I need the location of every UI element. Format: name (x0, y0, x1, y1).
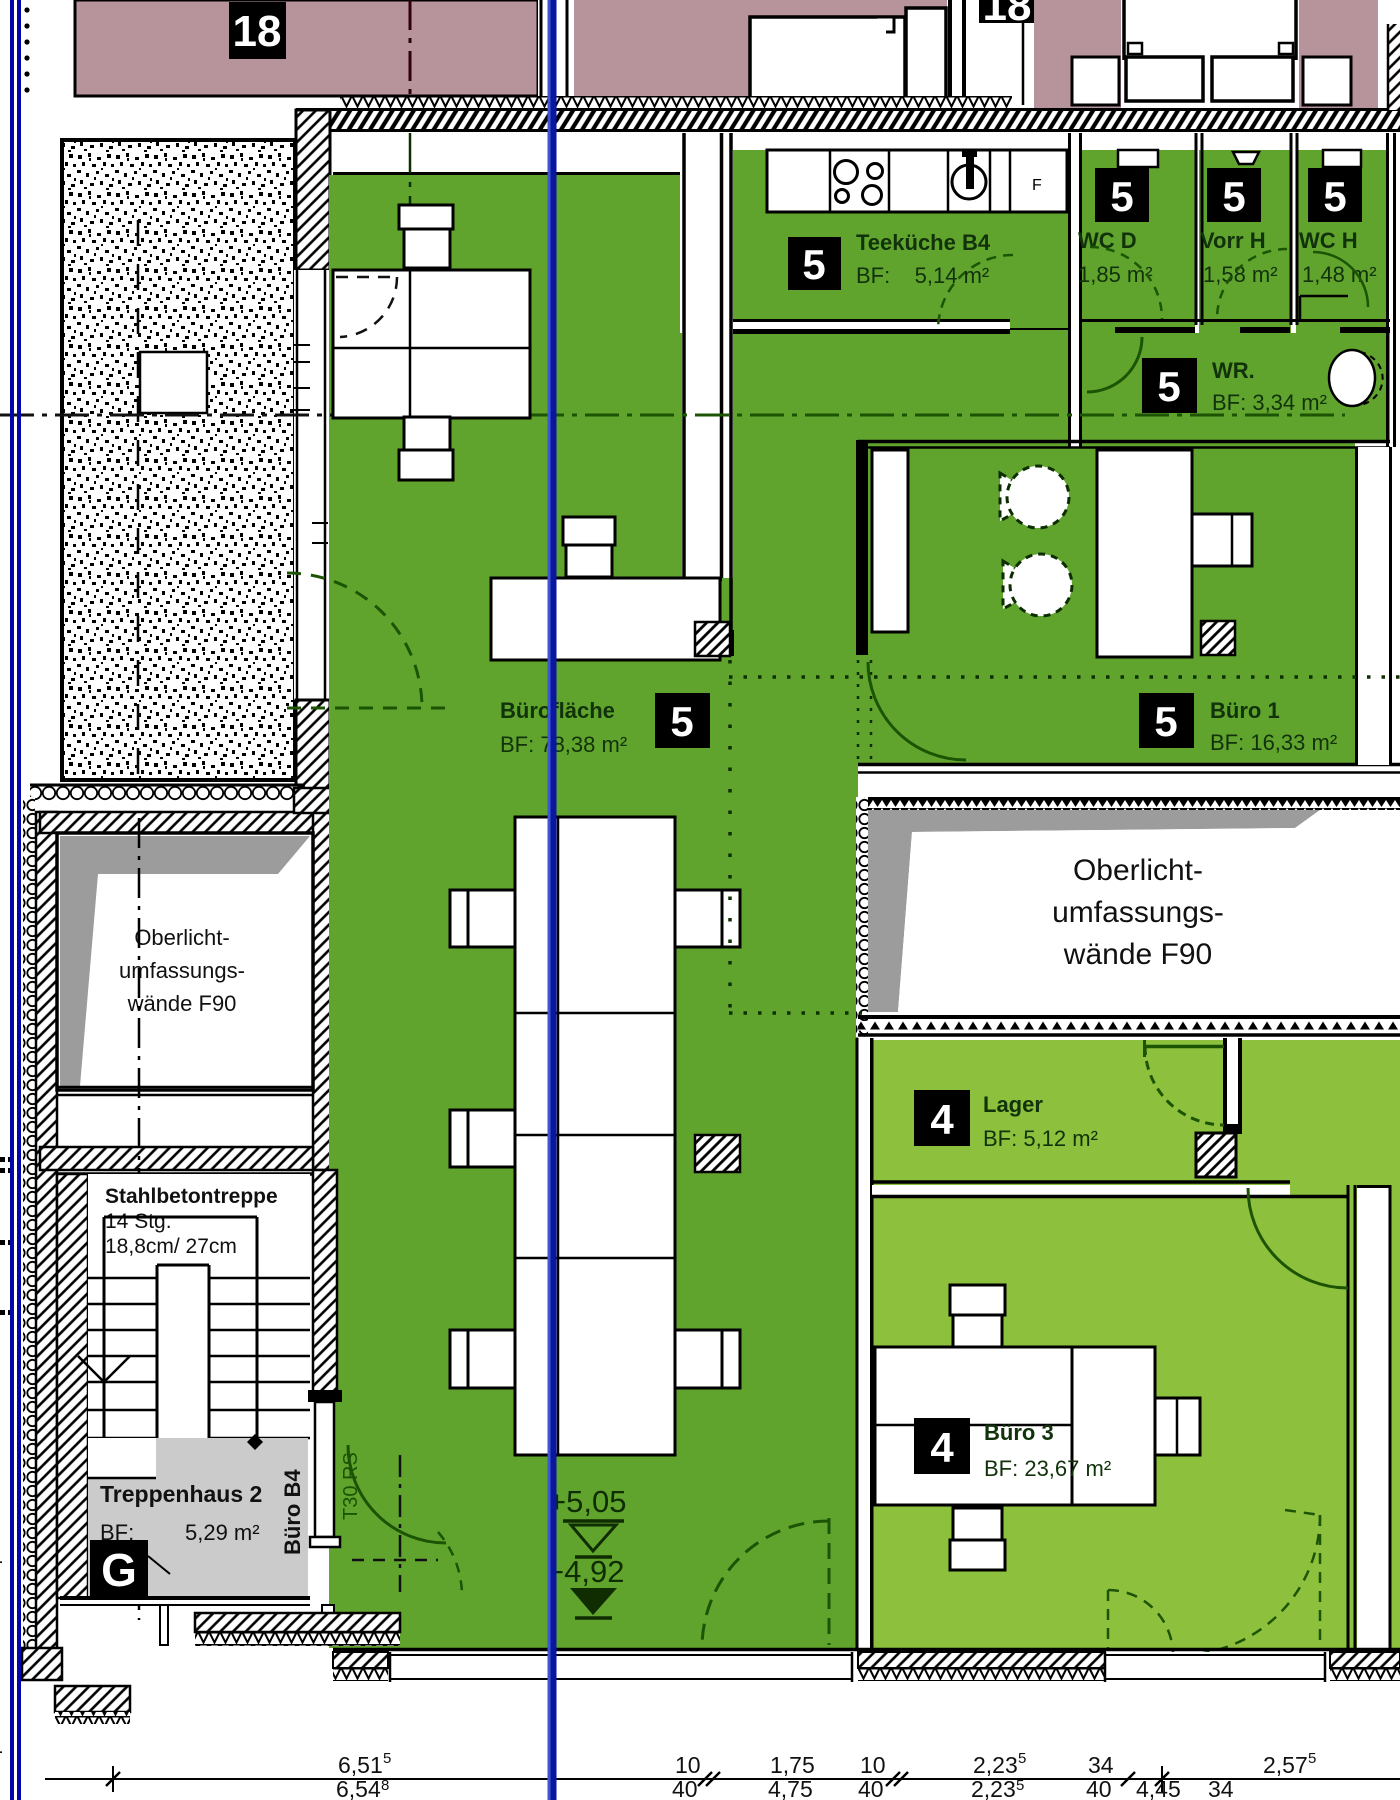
svg-text:4: 4 (0, 1749, 7, 1760)
svg-text:Lager: Lager (983, 1092, 1043, 1117)
svg-text:umfassungs-: umfassungs- (1052, 896, 1224, 929)
svg-text:Büro B4: Büro B4 (280, 1469, 305, 1555)
svg-text:5: 5 (1110, 173, 1133, 220)
svg-text:BF: 23,67 m²: BF: 23,67 m² (984, 1456, 1111, 1481)
svg-text:4,75: 4,75 (768, 1776, 813, 1800)
svg-text:40: 40 (1086, 1776, 1112, 1800)
svg-text:2,23: 2,23 (971, 1776, 1016, 1800)
svg-text:5: 5 (1323, 173, 1346, 220)
svg-text:2,23: 2,23 (973, 1752, 1018, 1778)
svg-text:5,29 m²: 5,29 m² (185, 1520, 260, 1545)
svg-text:BF: 78,38 m²: BF: 78,38 m² (500, 732, 627, 757)
svg-text:wände F90: wände F90 (127, 991, 237, 1016)
svg-text:4,45: 4,45 (1136, 1776, 1181, 1800)
svg-text:5: 5 (1016, 1777, 1024, 1794)
svg-text:4: 4 (0, 1559, 7, 1570)
svg-text:Oberlicht-: Oberlicht- (134, 925, 229, 950)
svg-text:BF: 3,34 m²: BF: 3,34 m² (1212, 390, 1327, 415)
svg-text:5: 5 (1222, 173, 1245, 220)
svg-text:1,48 m²: 1,48 m² (1302, 262, 1377, 287)
svg-text:Oberlicht-: Oberlicht- (1073, 854, 1203, 887)
svg-text:1,85 m²: 1,85 m² (1078, 262, 1153, 287)
svg-text:5: 5 (802, 241, 825, 288)
svg-text:Teeküche B4: Teeküche B4 (856, 230, 991, 255)
svg-text:5: 5 (1154, 698, 1177, 745)
svg-text:5: 5 (1157, 363, 1180, 410)
svg-text:10: 10 (675, 1752, 701, 1778)
svg-text:5: 5 (1308, 1750, 1316, 1767)
svg-text:Büro 3: Büro 3 (984, 1420, 1054, 1445)
svg-text:8: 8 (381, 1777, 389, 1794)
svg-text:5: 5 (670, 698, 693, 745)
svg-text:40: 40 (672, 1776, 698, 1800)
svg-text:G: G (101, 1544, 137, 1596)
svg-text:BF: 16,33 m²: BF: 16,33 m² (1210, 730, 1337, 755)
svg-text:18,8cm/ 27cm: 18,8cm/ 27cm (105, 1235, 237, 1258)
svg-text:34: 34 (1088, 1752, 1114, 1778)
svg-text:Vorr H: Vorr H (1200, 228, 1266, 253)
svg-text:+4,92: +4,92 (546, 1554, 624, 1589)
svg-text:10: 10 (860, 1752, 886, 1778)
svg-text:18: 18 (233, 7, 282, 56)
svg-text:F: F (1032, 177, 1042, 194)
svg-text:4: 4 (930, 1096, 954, 1143)
svg-text:40: 40 (858, 1776, 884, 1800)
svg-text:4: 4 (930, 1424, 954, 1471)
svg-text:Stahlbetontreppe: Stahlbetontreppe (105, 1185, 278, 1208)
svg-text:1,75: 1,75 (770, 1752, 815, 1778)
svg-text:5: 5 (1018, 1750, 1026, 1767)
svg-text:Büro 1: Büro 1 (1210, 698, 1280, 723)
svg-text:6,51: 6,51 (338, 1752, 383, 1778)
svg-text:5: 5 (383, 1750, 391, 1767)
svg-text:2,57: 2,57 (1263, 1752, 1308, 1778)
svg-text:34: 34 (1208, 1776, 1234, 1800)
svg-text:WC H: WC H (1299, 228, 1358, 253)
svg-text:WR.: WR. (1212, 358, 1255, 383)
svg-text:Bürofläche: Bürofläche (500, 698, 615, 723)
svg-text:6,54: 6,54 (336, 1776, 381, 1800)
svg-text:+5,05: +5,05 (548, 1484, 626, 1519)
svg-text:wände F90: wände F90 (1063, 938, 1212, 971)
svg-text:BF: 5,12 m²: BF: 5,12 m² (983, 1126, 1098, 1151)
svg-text:14 Stg.: 14 Stg. (105, 1210, 172, 1233)
svg-text:BF: 5,14 m²: BF: 5,14 m² (856, 263, 989, 288)
svg-text:Treppenhaus 2: Treppenhaus 2 (100, 1481, 262, 1507)
